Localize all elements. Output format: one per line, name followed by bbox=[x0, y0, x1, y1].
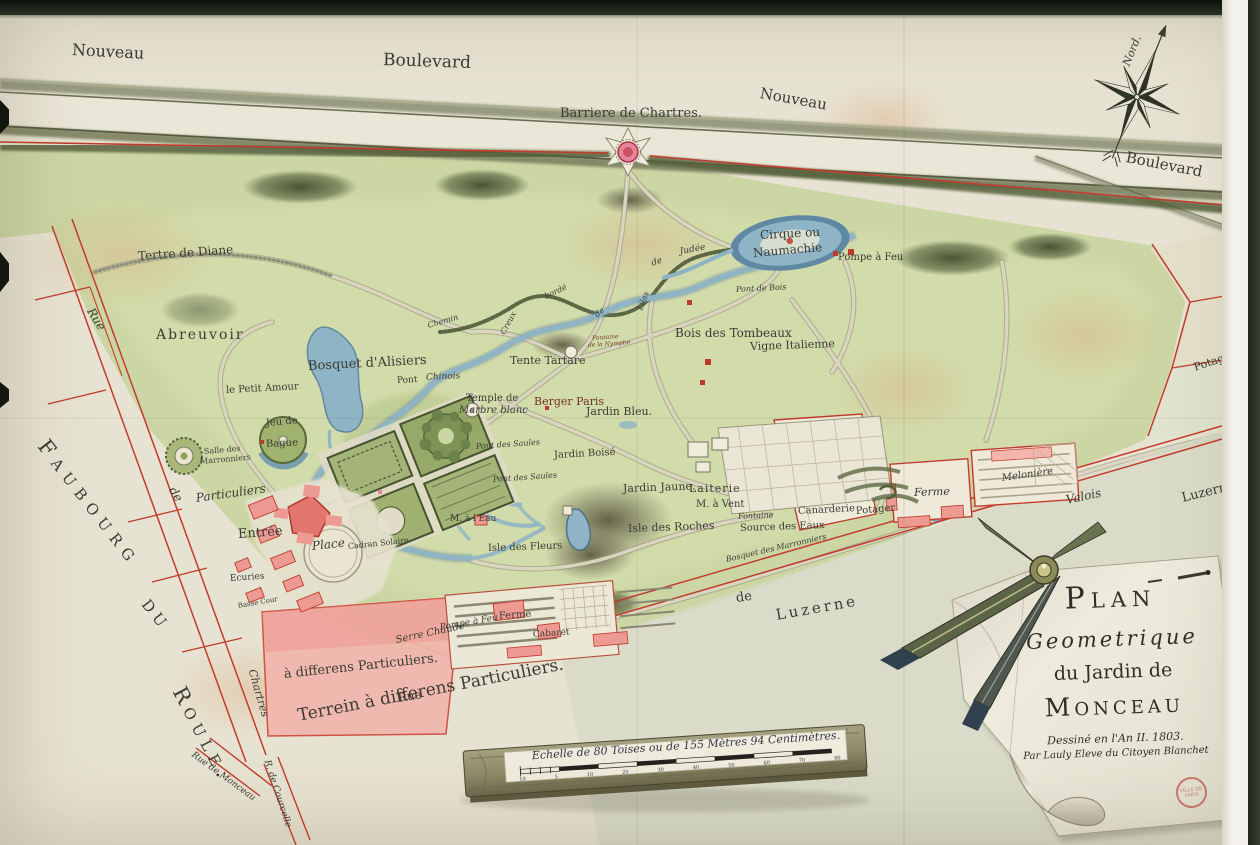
map-label-bosquet-des-marronniers: Bosquet des Marronniers bbox=[725, 533, 827, 564]
map-label-rue-bottom: Rue bbox=[397, 688, 422, 704]
frame-top-edge bbox=[0, 15, 1260, 19]
map-label-ecuries: Ecuries bbox=[230, 573, 265, 584]
map-label-creux: Creux bbox=[499, 311, 517, 336]
map-label-tertre-de-diane: Tertre de Diane bbox=[138, 243, 234, 262]
map-label-du: du bbox=[138, 594, 176, 634]
map-label-laiterie: Laiterie bbox=[689, 483, 741, 494]
map-label-basse-cour: Basse Cour bbox=[237, 596, 278, 610]
map-label-cabaret: Cabaret bbox=[533, 628, 570, 640]
scale-tick: 5 bbox=[554, 774, 558, 780]
map-label-vigne-italienne: Vigne Italienne bbox=[750, 338, 835, 352]
map-label-particuliers-entree: Particuliers bbox=[195, 482, 266, 504]
scale-tick: 70 bbox=[799, 758, 806, 764]
map-label-isle-des-roches: Isle des Roches bbox=[628, 520, 715, 534]
map-label-tente-tartare: Tente Tartare bbox=[510, 355, 586, 366]
map-label-isle-des-fleurs: Isle des Fleurs bbox=[488, 541, 563, 554]
scale-tick: 50 bbox=[728, 762, 735, 768]
map-label-bosquet-d-alisiers: Bosquet d'Alisiers bbox=[308, 354, 427, 373]
map-label-de-lilas: de bbox=[593, 307, 606, 319]
cartouche-title-plan: Plan bbox=[1003, 576, 1218, 618]
map-label-faubourg: Faubourg bbox=[34, 436, 145, 570]
scale-tick: 80 bbox=[834, 755, 841, 761]
map-label-abreuvoir: Abreuvoir bbox=[156, 328, 245, 342]
paper-crease bbox=[636, 0, 638, 845]
map-label-m-a-l-eau: M. à l'Eau bbox=[450, 515, 496, 524]
map-label-le-petit-amour: le Petit Amour bbox=[226, 382, 299, 396]
scale-tick: 20 bbox=[622, 769, 629, 775]
map-label-de-left: de bbox=[167, 485, 185, 504]
map-label-nord: Nord. bbox=[1121, 34, 1143, 68]
paper-crease bbox=[0, 417, 1260, 419]
map-label-nouveau-left: Nouveau bbox=[72, 42, 145, 62]
map-label-pompe-a-feu-bas: Pompe à Feu bbox=[439, 614, 498, 633]
monceau-map: NouveauBoulevardNouveauBoulevardBarriere… bbox=[0, 0, 1260, 845]
map-label-meloniere: Melonière bbox=[1001, 467, 1054, 484]
map-label-entree: Entrée bbox=[238, 525, 283, 541]
frame-top bbox=[0, 0, 1260, 15]
map-label-bague: Bague bbox=[266, 438, 299, 450]
map-label-rue-de-courcelle: R. de Courcelle bbox=[262, 759, 292, 829]
map-label-pont-des-saules-2: Pont des Saules bbox=[493, 472, 557, 484]
map-label-chartres-left: Chartres bbox=[247, 668, 271, 718]
map-label-ferme-bas: Ferme bbox=[499, 610, 532, 622]
map-label-m-a-vent: M. à Vent bbox=[696, 500, 744, 510]
scale-tick: 10 bbox=[519, 776, 526, 782]
map-label-potager-mid: Potager bbox=[856, 504, 896, 517]
map-label-de-judee: de bbox=[650, 256, 664, 268]
map-label-pompe-a-feu-droite: Pompe à Feu bbox=[838, 253, 903, 263]
map-label-naumachie: Naumachie bbox=[752, 241, 822, 259]
scale-tick: 10 bbox=[587, 772, 594, 778]
cartouche-title-geometrique: Geometrique bbox=[1005, 623, 1220, 654]
map-label-de-luzerne: de bbox=[735, 590, 753, 605]
map-label-jardin-jaune: Jardin Jaune. bbox=[623, 480, 696, 494]
scale-tick: 60 bbox=[763, 760, 770, 766]
scale-tick: 30 bbox=[657, 767, 664, 773]
cartouche-title-du-jardin: du Jardin de bbox=[1006, 657, 1221, 686]
map-label-source-des-eaux: Source des Eaux bbox=[740, 521, 825, 534]
map-label-marronniers: Marronniers bbox=[200, 454, 251, 466]
map-label-pont: Pont bbox=[397, 376, 418, 386]
map-label-differens-particuliers-pink: à differens Particuliers. bbox=[283, 652, 438, 681]
map-label-cirque-ou: Cirque ou bbox=[760, 226, 821, 241]
map-label-borde: bordé bbox=[543, 283, 568, 300]
map-label-temple-de: Temple de bbox=[466, 394, 518, 404]
map-label-pont-chinois: Chinois bbox=[426, 372, 461, 383]
map-label-lilas: Lilas bbox=[636, 291, 651, 312]
map-label-cadran-solaire: Cadran Solaire bbox=[348, 537, 410, 551]
map-label-boulevard-top: Boulevard bbox=[383, 52, 471, 72]
map-label-barriere-de-chartres: Barriere de Chartres. bbox=[560, 107, 702, 120]
map-label-rue-left: Rue bbox=[85, 306, 108, 333]
map-label-place: Place bbox=[311, 537, 345, 552]
map-label-chemin: Chemin bbox=[427, 314, 459, 330]
map-label-valois: Valois bbox=[1065, 487, 1102, 506]
map-label-boulevard-right: Boulevard bbox=[1125, 150, 1204, 180]
frame-right-dark bbox=[1248, 0, 1260, 845]
map-label-fontaine-nymphe-2: de la Nymphe bbox=[588, 340, 631, 349]
map-label-pont-des-saules-1: Pont des Saules bbox=[476, 439, 540, 451]
paper-crease bbox=[903, 0, 905, 845]
map-label-jardin-bleu: Jardin Bleu. bbox=[586, 406, 652, 417]
frame-right-mat bbox=[1222, 0, 1248, 845]
map-label-nouveau-right: Nouveau bbox=[759, 86, 828, 113]
map-label-ferme-droite: Ferme bbox=[914, 486, 950, 498]
cartouche-title-monceau: Monceau bbox=[1007, 687, 1222, 723]
scale-tick: 40 bbox=[693, 765, 700, 771]
map-label-judee: Judée bbox=[679, 244, 706, 257]
map-label-luzerne-grand: Luzerne bbox=[775, 594, 859, 623]
map-label-bois-des-tombeaux: Bois des Tombeaux bbox=[675, 327, 792, 339]
map-label-roule: Roule. bbox=[169, 684, 237, 786]
cartouche-text: Plan Geometrique du Jardin de Monceau De… bbox=[1003, 576, 1223, 762]
map-label-marbre-blanc: Marbre blanc bbox=[459, 406, 528, 416]
map-label-canarderie: Canarderie bbox=[798, 504, 855, 517]
map-label-fontaine-source: Fontaine bbox=[738, 511, 774, 521]
map-label-jardin-boise: Jardin Boisé bbox=[554, 448, 616, 461]
map-label-pont-de-bois: Pont de Bois bbox=[736, 283, 787, 294]
